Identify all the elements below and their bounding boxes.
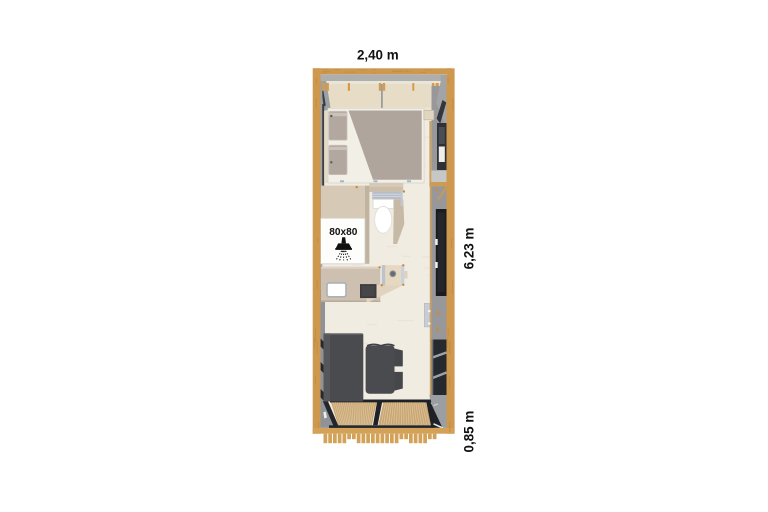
svg-text:0,85 m: 0,85 m [462,411,477,453]
svg-text:6,23 m: 6,23 m [462,228,477,270]
svg-text:2,40 m: 2,40 m [357,47,399,62]
svg-text:80x80: 80x80 [329,227,357,238]
